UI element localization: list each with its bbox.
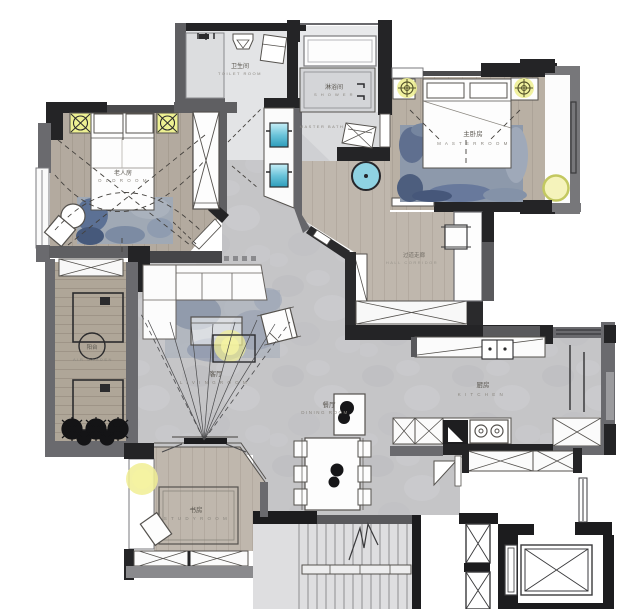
svg-text:S H O W E R: S H O W E R [314, 92, 354, 97]
svg-text:K I T C H E N: K I T C H E N [458, 392, 505, 397]
svg-text:卫生间: 卫生间 [231, 62, 249, 70]
svg-text:O L D R O O M: O L D R O O M [98, 178, 148, 183]
svg-text:MASTER BATH: MASTER BATH [300, 124, 345, 129]
svg-text:AIR GARDEN: AIR GARDEN [73, 357, 113, 362]
svg-text:S T U D Y R O O M: S T U D Y R O O M [164, 516, 228, 521]
svg-text:书房: 书房 [190, 505, 203, 514]
svg-text:TOILET ROOM: TOILET ROOM [218, 71, 262, 76]
svg-text:客厅: 客厅 [210, 369, 224, 378]
svg-text:M A S T E R R O O M: M A S T E R R O O M [437, 141, 509, 146]
svg-text:阳台: 阳台 [86, 343, 98, 351]
svg-text:DINING ROOM: DINING ROOM [301, 410, 349, 415]
svg-text:L I V I N G R O O M: L I V I N G R O O M [180, 380, 248, 385]
svg-text:过道走廊: 过道走廊 [403, 251, 426, 259]
svg-text:厨房: 厨房 [477, 380, 490, 389]
svg-text:主卧房: 主卧房 [463, 129, 483, 138]
svg-text:餐厅: 餐厅 [323, 400, 337, 409]
svg-text:老人房: 老人房 [114, 169, 132, 177]
svg-text:淋浴间: 淋浴间 [325, 83, 343, 91]
svg-text:HALL CORRIDOR: HALL CORRIDOR [386, 260, 438, 265]
